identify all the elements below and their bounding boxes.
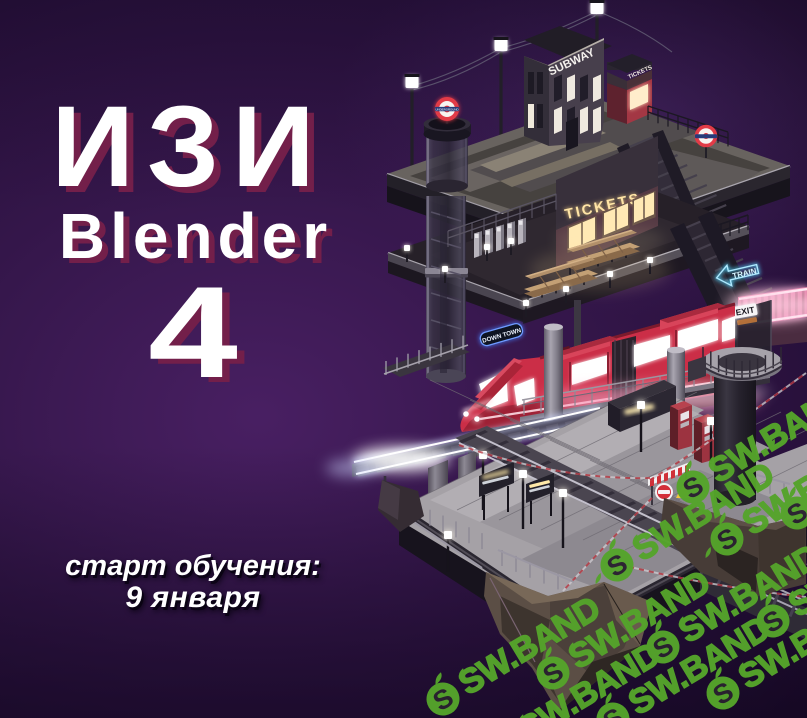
svg-text:UNDERGROUND: UNDERGROUND	[435, 108, 458, 112]
